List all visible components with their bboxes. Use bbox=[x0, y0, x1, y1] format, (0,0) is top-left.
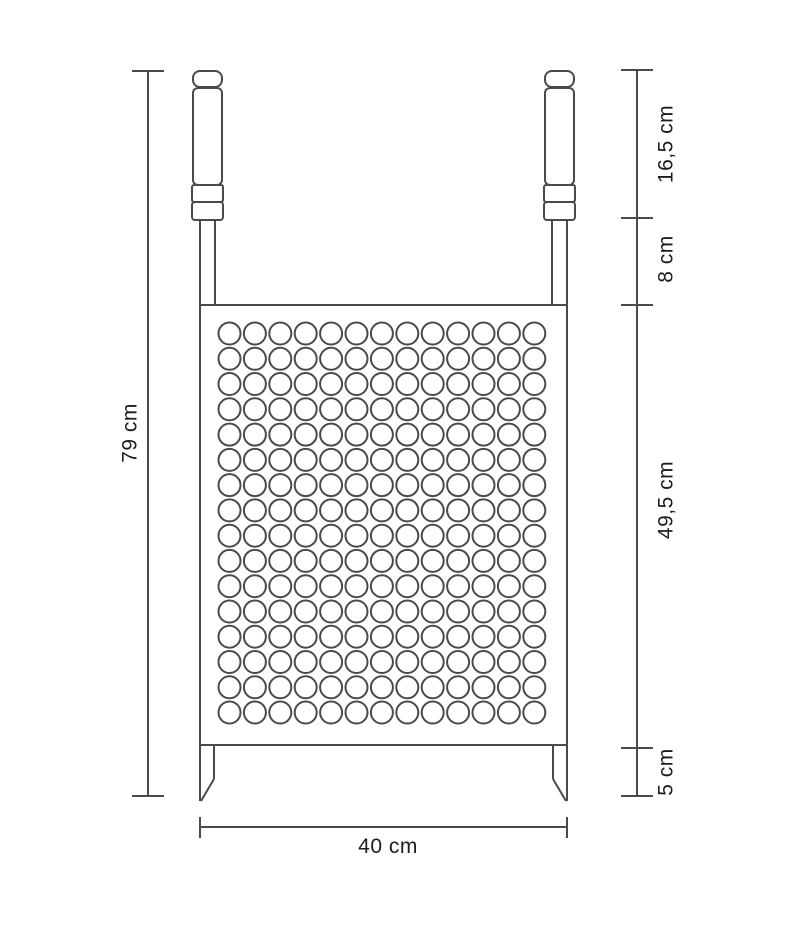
grate-hole bbox=[396, 651, 418, 673]
grate bbox=[200, 305, 567, 745]
grate-hole bbox=[422, 651, 444, 673]
grate-hole bbox=[422, 499, 444, 521]
grill-dimension-drawing: 79 cm 16,5 cm 8 cm 49,5 cm 5 cm 40 cm bbox=[0, 0, 800, 928]
grate-hole bbox=[269, 449, 291, 471]
grate-hole bbox=[473, 348, 495, 370]
grate-hole bbox=[523, 702, 545, 724]
grate-hole bbox=[371, 323, 393, 345]
grate-hole bbox=[269, 373, 291, 395]
grate-hole bbox=[447, 601, 469, 623]
grate-hole bbox=[244, 651, 266, 673]
grate-hole bbox=[269, 525, 291, 547]
grate-hole bbox=[320, 575, 342, 597]
grate-hole bbox=[523, 601, 545, 623]
grate-hole bbox=[498, 525, 520, 547]
grate-hole bbox=[295, 323, 317, 345]
right-leg-point-edge bbox=[553, 779, 566, 801]
grate-hole bbox=[447, 626, 469, 648]
grate-hole bbox=[473, 702, 495, 724]
grate-hole bbox=[219, 525, 241, 547]
grate-hole bbox=[269, 398, 291, 420]
grate-hole bbox=[269, 676, 291, 698]
drawing-canvas: 79 cm 16,5 cm 8 cm 49,5 cm 5 cm 40 cm bbox=[0, 0, 800, 928]
dimension-total-height: 79 cm bbox=[119, 71, 165, 796]
grate-hole bbox=[269, 348, 291, 370]
grate-hole bbox=[295, 348, 317, 370]
grate-hole bbox=[320, 702, 342, 724]
left-handle-cap bbox=[193, 71, 222, 87]
grate-hole bbox=[523, 424, 545, 446]
grate-hole bbox=[346, 499, 368, 521]
grate-hole bbox=[473, 626, 495, 648]
left-handle-band-lower bbox=[192, 202, 223, 220]
grate-hole bbox=[219, 348, 241, 370]
grate-hole bbox=[346, 373, 368, 395]
grate-hole bbox=[473, 449, 495, 471]
grate-hole bbox=[447, 575, 469, 597]
grate-hole bbox=[269, 651, 291, 673]
grate-hole bbox=[295, 575, 317, 597]
grate-hole bbox=[498, 651, 520, 673]
grate-hole bbox=[295, 651, 317, 673]
right-leg bbox=[553, 745, 567, 801]
grate-hole bbox=[320, 398, 342, 420]
grate-hole bbox=[219, 702, 241, 724]
grate-hole bbox=[295, 424, 317, 446]
grate-hole bbox=[269, 601, 291, 623]
grate-hole bbox=[269, 323, 291, 345]
grate-hole bbox=[295, 499, 317, 521]
grate-hole bbox=[244, 449, 266, 471]
grate-hole bbox=[295, 474, 317, 496]
grate-hole bbox=[346, 348, 368, 370]
grate-hole bbox=[447, 525, 469, 547]
grate-hole bbox=[244, 601, 266, 623]
grate-hole bbox=[447, 348, 469, 370]
grate-hole bbox=[523, 449, 545, 471]
grate-hole bbox=[498, 499, 520, 521]
grate-hole bbox=[371, 525, 393, 547]
left-handle bbox=[192, 71, 223, 305]
grate-hole bbox=[523, 323, 545, 345]
grate-hole bbox=[447, 323, 469, 345]
grate-hole bbox=[269, 474, 291, 496]
grate-hole bbox=[244, 575, 266, 597]
grate-hole bbox=[244, 474, 266, 496]
grate-hole bbox=[346, 525, 368, 547]
grate-hole bbox=[295, 373, 317, 395]
grate-hole bbox=[498, 601, 520, 623]
grate-hole bbox=[219, 550, 241, 572]
grate-hole bbox=[219, 373, 241, 395]
grate-hole bbox=[295, 626, 317, 648]
dim-label-width: 40 cm bbox=[358, 835, 418, 858]
dimension-width: 40 cm bbox=[200, 817, 567, 858]
grate-hole bbox=[447, 651, 469, 673]
grate-hole bbox=[244, 626, 266, 648]
grate-hole bbox=[523, 499, 545, 521]
grate-hole bbox=[371, 651, 393, 673]
grate-hole bbox=[498, 449, 520, 471]
grate-hole bbox=[269, 424, 291, 446]
grate-hole bbox=[244, 550, 266, 572]
grate-hole bbox=[295, 676, 317, 698]
grate-hole bbox=[447, 702, 469, 724]
grate-hole bbox=[244, 348, 266, 370]
dim-label-total-height: 79 cm bbox=[119, 403, 142, 463]
right-handle-band-lower bbox=[544, 202, 575, 220]
grate-hole bbox=[371, 702, 393, 724]
grate-hole bbox=[523, 575, 545, 597]
grate-hole bbox=[473, 525, 495, 547]
grate-hole bbox=[396, 323, 418, 345]
dim-label-rod-section: 8 cm bbox=[655, 235, 678, 283]
grate-hole bbox=[320, 651, 342, 673]
grate-hole bbox=[244, 499, 266, 521]
grate-hole bbox=[396, 626, 418, 648]
grate-hole bbox=[371, 575, 393, 597]
grate-hole bbox=[447, 550, 469, 572]
grate-hole bbox=[371, 499, 393, 521]
grate-hole bbox=[422, 550, 444, 572]
grate-hole bbox=[219, 499, 241, 521]
grate-hole bbox=[269, 702, 291, 724]
grate-hole bbox=[320, 449, 342, 471]
grate-hole bbox=[320, 499, 342, 521]
grate-hole bbox=[473, 323, 495, 345]
grate-hole bbox=[371, 424, 393, 446]
grate-hole bbox=[320, 525, 342, 547]
grate-hole bbox=[219, 676, 241, 698]
grate-hole bbox=[498, 626, 520, 648]
grate-hole bbox=[447, 676, 469, 698]
grate-hole bbox=[473, 499, 495, 521]
left-handle-body bbox=[193, 88, 222, 185]
grate-hole bbox=[295, 398, 317, 420]
grate-hole bbox=[422, 348, 444, 370]
grate-hole bbox=[447, 398, 469, 420]
grate-hole bbox=[320, 348, 342, 370]
grate-hole bbox=[346, 702, 368, 724]
grate-holes bbox=[219, 323, 546, 724]
grate-hole bbox=[498, 575, 520, 597]
grate-hole bbox=[269, 499, 291, 521]
grate-hole bbox=[244, 323, 266, 345]
grate-hole bbox=[346, 398, 368, 420]
grate-hole bbox=[523, 398, 545, 420]
grate-hole bbox=[498, 702, 520, 724]
grate-hole bbox=[422, 601, 444, 623]
right-handle-band-upper bbox=[544, 185, 575, 202]
grate-hole bbox=[371, 626, 393, 648]
grate-hole bbox=[371, 601, 393, 623]
grate-hole bbox=[523, 550, 545, 572]
grate-hole bbox=[396, 575, 418, 597]
grate-hole bbox=[396, 449, 418, 471]
grate-hole bbox=[295, 525, 317, 547]
grate-hole bbox=[396, 474, 418, 496]
grate-hole bbox=[498, 424, 520, 446]
grate-hole bbox=[523, 348, 545, 370]
grate-hole bbox=[320, 676, 342, 698]
grate-hole bbox=[396, 676, 418, 698]
grate-hole bbox=[523, 373, 545, 395]
grate-hole bbox=[244, 424, 266, 446]
grate-hole bbox=[498, 550, 520, 572]
grate-hole bbox=[523, 474, 545, 496]
grate-hole bbox=[346, 676, 368, 698]
grate-hole bbox=[219, 474, 241, 496]
grate-hole bbox=[396, 702, 418, 724]
grate-hole bbox=[447, 474, 469, 496]
dimension-right-chain: 16,5 cm 8 cm 49,5 cm 5 cm bbox=[621, 70, 678, 796]
grate-hole bbox=[498, 398, 520, 420]
grate-hole bbox=[320, 323, 342, 345]
grate-hole bbox=[422, 398, 444, 420]
grate-hole bbox=[295, 550, 317, 572]
grate-hole bbox=[346, 449, 368, 471]
grate-hole bbox=[473, 424, 495, 446]
grate-hole bbox=[295, 702, 317, 724]
grate-hole bbox=[269, 550, 291, 572]
grate-hole bbox=[320, 626, 342, 648]
grate-hole bbox=[371, 398, 393, 420]
grate-hole bbox=[473, 676, 495, 698]
grate-hole bbox=[295, 601, 317, 623]
grate-hole bbox=[396, 424, 418, 446]
grate-hole bbox=[371, 676, 393, 698]
grate-hole bbox=[422, 424, 444, 446]
grate-hole bbox=[473, 601, 495, 623]
grate-hole bbox=[346, 626, 368, 648]
dim-label-grate-section: 49,5 cm bbox=[655, 461, 678, 539]
grate-hole bbox=[422, 626, 444, 648]
grate-hole bbox=[371, 449, 393, 471]
left-leg-point-edge bbox=[201, 779, 214, 801]
left-handle-band-upper bbox=[192, 185, 223, 202]
right-handle bbox=[544, 71, 575, 305]
grate-hole bbox=[498, 348, 520, 370]
grate-hole bbox=[473, 651, 495, 673]
grate-hole bbox=[498, 474, 520, 496]
grate-hole bbox=[371, 550, 393, 572]
grate-hole bbox=[244, 525, 266, 547]
grate-hole bbox=[219, 398, 241, 420]
grate-hole bbox=[396, 601, 418, 623]
left-leg bbox=[200, 745, 214, 801]
grate-hole bbox=[422, 525, 444, 547]
grate-hole bbox=[498, 323, 520, 345]
grate-hole bbox=[473, 550, 495, 572]
right-handle-cap bbox=[545, 71, 574, 87]
grate-hole bbox=[346, 601, 368, 623]
grate-hole bbox=[422, 373, 444, 395]
grate-hole bbox=[473, 373, 495, 395]
grate-hole bbox=[447, 449, 469, 471]
grate-hole bbox=[396, 398, 418, 420]
grate-hole bbox=[346, 651, 368, 673]
grate-hole bbox=[320, 424, 342, 446]
grate-hole bbox=[219, 323, 241, 345]
grate-hole bbox=[422, 323, 444, 345]
grate-hole bbox=[422, 702, 444, 724]
grate-hole bbox=[346, 550, 368, 572]
grate-hole bbox=[447, 499, 469, 521]
grate-hole bbox=[473, 474, 495, 496]
grate-hole bbox=[346, 474, 368, 496]
right-handle-body bbox=[545, 88, 574, 185]
grate-hole bbox=[219, 651, 241, 673]
grate-hole bbox=[219, 601, 241, 623]
grate-hole bbox=[371, 474, 393, 496]
dim-label-handle-section: 16,5 cm bbox=[655, 105, 678, 183]
grate-hole bbox=[320, 550, 342, 572]
grate-hole bbox=[523, 626, 545, 648]
grate-hole bbox=[523, 525, 545, 547]
grate-hole bbox=[346, 575, 368, 597]
grate-hole bbox=[244, 398, 266, 420]
dim-label-leg-section: 5 cm bbox=[655, 748, 678, 796]
grate-hole bbox=[244, 676, 266, 698]
grate-hole bbox=[422, 676, 444, 698]
grate-hole bbox=[244, 373, 266, 395]
grate-hole bbox=[473, 575, 495, 597]
grate-hole bbox=[473, 398, 495, 420]
grate-hole bbox=[498, 676, 520, 698]
grate-hole bbox=[422, 575, 444, 597]
grate-hole bbox=[269, 626, 291, 648]
grate-hole bbox=[396, 373, 418, 395]
grate-hole bbox=[320, 601, 342, 623]
grate-hole bbox=[371, 373, 393, 395]
grate-hole bbox=[346, 323, 368, 345]
grate-hole bbox=[422, 449, 444, 471]
grate-hole bbox=[295, 449, 317, 471]
grate-hole bbox=[422, 474, 444, 496]
grate-hole bbox=[523, 651, 545, 673]
grate-hole bbox=[219, 575, 241, 597]
grate-hole bbox=[447, 424, 469, 446]
grate-hole bbox=[219, 449, 241, 471]
grate-hole bbox=[244, 702, 266, 724]
grate-hole bbox=[269, 575, 291, 597]
grate-hole bbox=[396, 499, 418, 521]
grate-hole bbox=[320, 474, 342, 496]
grate-hole bbox=[320, 373, 342, 395]
grate-hole bbox=[523, 676, 545, 698]
grate-hole bbox=[219, 424, 241, 446]
grate-hole bbox=[447, 373, 469, 395]
grate-hole bbox=[346, 424, 368, 446]
grate-hole bbox=[396, 550, 418, 572]
grate-hole bbox=[219, 626, 241, 648]
grate-hole bbox=[371, 348, 393, 370]
grate-hole bbox=[498, 373, 520, 395]
grate-hole bbox=[396, 348, 418, 370]
grate-hole bbox=[396, 525, 418, 547]
